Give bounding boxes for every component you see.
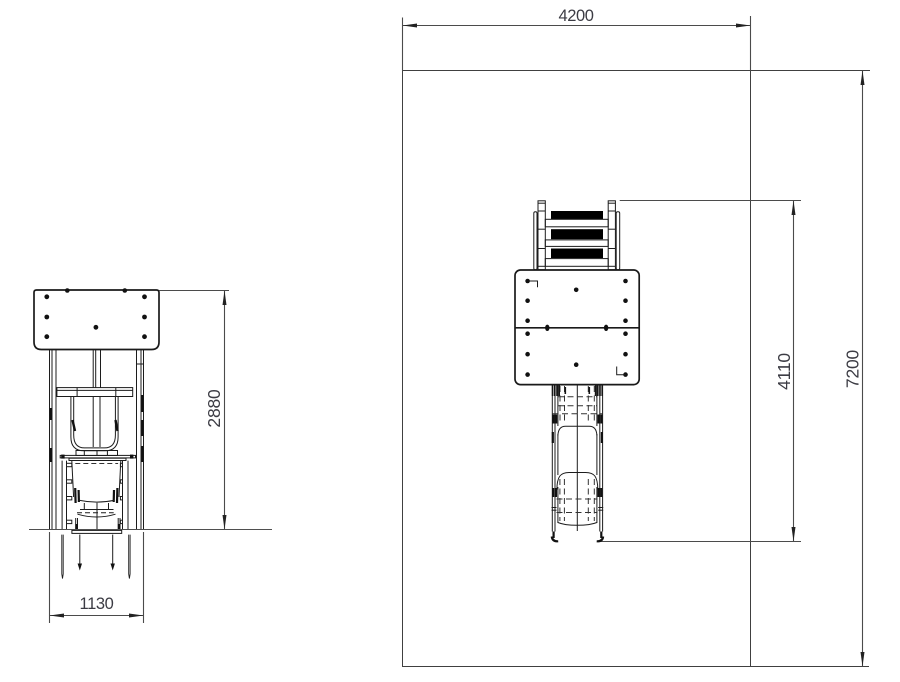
svg-text:4110: 4110 [774,353,794,390]
svg-text:7200: 7200 [843,349,863,388]
svg-text:1130: 1130 [80,595,114,613]
svg-text:2880: 2880 [204,389,224,428]
svg-text:4200: 4200 [558,7,593,25]
